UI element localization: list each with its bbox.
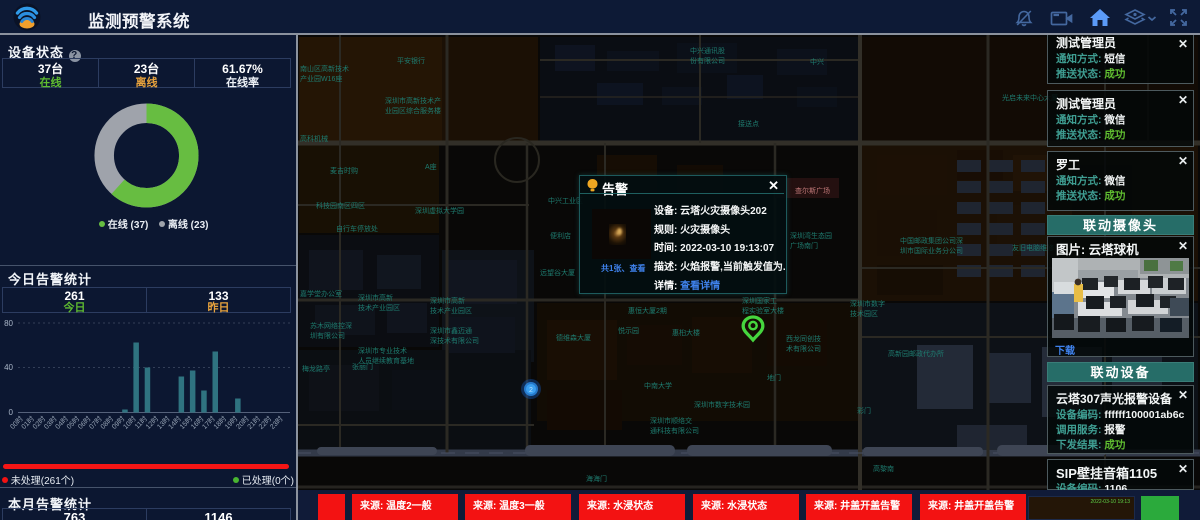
svg-text:德维森大厦: 德维森大厦	[556, 333, 591, 342]
svg-text:查尔斯广场: 查尔斯广场	[795, 186, 830, 195]
svg-text:张丽门: 张丽门	[352, 362, 373, 371]
svg-text:高黎南: 高黎南	[873, 464, 894, 473]
svg-text:通科技有限公司: 通科技有限公司	[650, 426, 699, 435]
svg-text:惠桕大楼: 惠桕大楼	[672, 328, 700, 337]
svg-text:技术产业园区: 技术产业园区	[358, 303, 400, 312]
svg-text:平安银行: 平安银行	[397, 56, 425, 65]
svg-text:A座: A座	[425, 162, 437, 171]
svg-text:自行车停放处: 自行车停放处	[336, 224, 378, 233]
svg-text:深圳市数字: 深圳市数字	[850, 299, 885, 308]
svg-text:中兴工业区: 中兴工业区	[548, 196, 583, 205]
svg-text:深圳市高新技术产: 深圳市高新技术产	[385, 96, 441, 105]
svg-text:高科机械: 高科机械	[300, 134, 328, 143]
svg-text:技术园区: 技术园区	[850, 309, 878, 318]
svg-text:中国邮政集团公司深: 中国邮政集团公司深	[900, 236, 963, 245]
svg-text:便利店: 便利店	[550, 231, 571, 240]
svg-text:麦吉时购: 麦吉时购	[330, 166, 358, 175]
svg-text:深圳国家工: 深圳国家工	[742, 296, 777, 305]
svg-text:业园区综合服务楼: 业园区综合服务楼	[385, 106, 441, 115]
svg-text:深圳湾生态园: 深圳湾生态园	[790, 231, 832, 240]
svg-text:深圳市顺络交: 深圳市顺络交	[650, 416, 692, 425]
svg-text:海海门: 海海门	[586, 474, 607, 483]
svg-text:中南大学: 中南大学	[644, 381, 672, 390]
svg-text:苏木网络控深: 苏木网络控深	[310, 321, 352, 330]
svg-text:中兴通讯股: 中兴通讯股	[690, 46, 725, 55]
svg-text:圳市国际业务分公司: 圳市国际业务分公司	[900, 246, 963, 255]
svg-text:80: 80	[4, 319, 13, 328]
svg-text:彩门: 彩门	[857, 406, 871, 415]
svg-text:深技术有限公司: 深技术有限公司	[430, 336, 479, 345]
svg-text:远望谷大厦: 远望谷大厦	[540, 268, 575, 277]
svg-text:中兴: 中兴	[810, 57, 824, 66]
svg-text:广场南门: 广场南门	[790, 241, 818, 250]
svg-text:深圳市鑫迈通: 深圳市鑫迈通	[430, 326, 472, 335]
svg-text:悦示园: 悦示园	[618, 326, 639, 335]
svg-text:圳有限公司: 圳有限公司	[310, 331, 345, 340]
svg-text:0: 0	[9, 408, 14, 417]
svg-text:深圳市高新: 深圳市高新	[358, 293, 393, 302]
svg-text:科技园南区四区: 科技园南区四区	[316, 201, 365, 210]
svg-text:深圳市高新: 深圳市高新	[430, 296, 465, 305]
svg-text:西龙同创技: 西龙同创技	[786, 334, 821, 343]
svg-text:南山区高新技术: 南山区高新技术	[300, 64, 349, 73]
svg-text:梅龙路亭: 梅龙路亭	[302, 364, 330, 373]
svg-text:术有限公司: 术有限公司	[786, 344, 821, 353]
svg-text:技术产业园区: 技术产业园区	[430, 306, 472, 315]
svg-text:产业园W16座: 产业园W16座	[300, 74, 342, 83]
svg-text:程实验室大楼: 程实验室大楼	[742, 306, 784, 315]
svg-text:深圳市数字技术园: 深圳市数字技术园	[694, 400, 750, 409]
svg-text:40: 40	[4, 363, 13, 372]
svg-text:接送点: 接送点	[738, 119, 759, 128]
svg-text:嘉学堂办公室: 嘉学堂办公室	[300, 289, 342, 298]
svg-text:惠恒大厦2期: 惠恒大厦2期	[628, 306, 667, 315]
svg-text:份有限公司: 份有限公司	[690, 56, 725, 65]
svg-text:深圳虚拟大学园: 深圳虚拟大学园	[415, 206, 464, 215]
svg-text:地门: 地门	[767, 373, 781, 382]
svg-text:2: 2	[529, 387, 533, 394]
svg-text:高新园邮政代办所: 高新园邮政代办所	[888, 349, 944, 358]
svg-text:深圳市专业技术: 深圳市专业技术	[358, 346, 407, 355]
